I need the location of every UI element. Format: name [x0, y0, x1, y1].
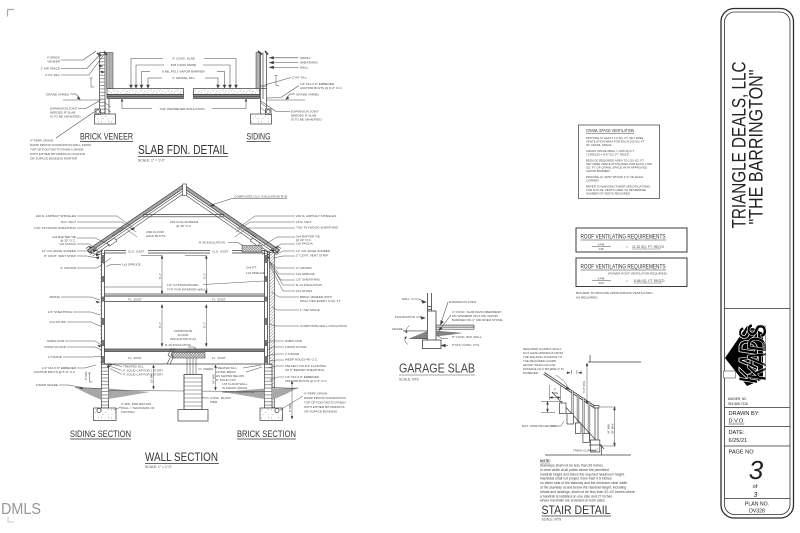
svg-text:BUILDER TO PROVIDE APPROPRIATE: BUILDER TO PROVIDE APPROPRIATE VENTILATI… [576, 291, 653, 295]
svg-text:8" MIN: 8" MIN [288, 404, 292, 412]
svg-text:PLAN NO.: PLAN NO. [745, 502, 769, 508]
svg-text:2"X4" SILL: 2"X4" SILL [45, 73, 60, 77]
svg-text:3: 3 [749, 455, 764, 485]
svg-text:ANGIER, NC: ANGIER, NC [728, 397, 747, 401]
svg-text:IS TO BE UNHEATED: IS TO BE UNHEATED [50, 115, 81, 119]
svg-text:1/2" SHEATHING: 1/2" SHEATHING [296, 278, 321, 282]
svg-text:6/25/21: 6/25/21 [729, 438, 748, 444]
svg-text:R-13 INSULATION: R-13 INSULATION [296, 283, 322, 287]
svg-text:D.V.O.: D.V.O. [729, 419, 746, 425]
svg-text:34" MIN.: 34" MIN. [607, 423, 611, 434]
svg-text:9": 9" [554, 388, 556, 392]
svg-text:6'-8" MIN.: 6'-8" MIN. [582, 380, 586, 393]
svg-text:UP 6" BEHIND SHEATHING: UP 6" BEHIND SHEATHING [285, 368, 325, 372]
svg-text:of the stairway at and below t: of the stairway at and below the handrai… [540, 486, 626, 490]
svg-text:WEEP HOLES 48" O.C.: WEEP HOLES 48" O.C. [285, 358, 318, 362]
svg-text:240 lb. ASPHALT SHINGLES: 240 lb. ASPHALT SHINGLES [36, 214, 76, 218]
svg-text:15 lb. FELT: 15 lb. FELT [60, 220, 76, 224]
svg-text:8" CONC. BLK WALL: 8" CONC. BLK WALL [452, 335, 482, 339]
svg-text:SIDING: SIDING [300, 56, 311, 60]
svg-text:2" CROWN: 2" CROWN [296, 266, 312, 270]
svg-text:COMPOSITE CLG. INSULATION R-30: COMPOSITE CLG. INSULATION R-30 [234, 195, 288, 199]
svg-text:=: = [626, 245, 628, 249]
svg-text:2" CONT. VENT STRIP: 2" CONT. VENT STRIP [296, 254, 328, 258]
svg-text:24" MIN: 24" MIN [212, 374, 216, 384]
svg-text:1x3 SPRUCE: 1x3 SPRUCE [122, 263, 141, 267]
svg-text:15 lb. FELT: 15 lb. FELT [296, 220, 312, 224]
svg-text:ROOF VENTILATING REQUIREMENTS: ROOF VENTILATING REQUIREMENTS [581, 264, 666, 271]
svg-text:FINISH FLOOR: FINISH FLOOR [44, 345, 66, 349]
svg-text:SCALE: 1" = 1'-0": SCALE: 1" = 1'-0" [145, 465, 173, 469]
svg-text:8'-1": 8'-1" [158, 273, 162, 279]
svg-text:CLG. JOIST: CLG. JOIST [128, 250, 145, 254]
svg-text:BARRIER ON 4" CRUSHED STONE: BARRIER ON 4" CRUSHED STONE [452, 318, 503, 322]
svg-text:7/16" PLYWOOD SHEATHING: 7/16" PLYWOOD SHEATHING [296, 226, 339, 230]
svg-text:2 X BAND: 2 X BAND [285, 352, 300, 356]
svg-text:UNDER: UNDER [203, 367, 213, 371]
svg-text:SUBFLOOR: SUBFLOOR [47, 339, 65, 343]
svg-text:2" CROWN: 2" CROWN [60, 266, 76, 270]
svg-text:=: = [626, 279, 628, 283]
svg-text:FOOTING: FOOTING [121, 410, 135, 414]
svg-text:DAMP PROOF FOUNDATION: DAMP PROOF FOUNDATION [304, 396, 346, 400]
svg-text:4" PERF. DRAIN: 4" PERF. DRAIN [30, 139, 53, 143]
svg-text:2x4 P.T.: 2x4 P.T. [246, 266, 257, 270]
svg-text:CLG. JOIST: CLG. JOIST [212, 250, 229, 254]
svg-text:7/16" PLYWOOD SHEATHING: 7/16" PLYWOOD SHEATHING [34, 226, 77, 230]
svg-text:8" MIN: 8" MIN [84, 372, 88, 380]
svg-text:12" GS. EDGE SCREEN: 12" GS. EDGE SCREEN [296, 249, 330, 253]
svg-text:8"X16" CONC. FTG.: 8"X16" CONC. FTG. [452, 343, 480, 347]
svg-text:NUMBER OF VENTS REQUIRED.: NUMBER OF VENTS REQUIRED. [586, 192, 631, 196]
svg-text:WALL SECTION: WALL SECTION [145, 450, 218, 464]
svg-text:BRICK SECTION: BRICK SECTION [237, 429, 296, 439]
svg-text:GRADE: GRADE [392, 327, 403, 331]
svg-text:6X6 (10/10 WWM): 6X6 (10/10 WWM) [171, 63, 196, 67]
svg-text:12" GS. EDGE SCREEN: 12" GS. EDGE SCREEN [42, 249, 76, 253]
svg-text:in clear width at all points a: in clear width at all points above the p… [540, 468, 609, 472]
svg-text:KADS: KADS [742, 324, 772, 381]
svg-text:R-19 INSULATION: R-19 INSULATION [165, 343, 191, 347]
svg-text:of: of [753, 484, 758, 490]
svg-text:VAPOR BARRIER.: VAPOR BARRIER. [586, 169, 611, 173]
svg-text:WALL TIES EVERY 3 SQ. FT.: WALL TIES EVERY 3 SQ. FT. [300, 299, 341, 303]
svg-text:240 lb. ASPHALT SHINGLES: 240 lb. ASPHALT SHINGLES [296, 214, 336, 218]
svg-text:SIDING: SIDING [247, 132, 271, 142]
svg-text:BRICK VENEER: BRICK VENEER [80, 132, 133, 142]
svg-text:8'-1": 8'-1" [158, 322, 162, 328]
svg-text:treads and landings, shall not: treads and landings, shall not be less t… [540, 490, 635, 494]
svg-text:STAIR DETAIL: STAIR DETAIL [542, 505, 612, 517]
svg-text:1" AIR SPACE: 1" AIR SPACE [300, 308, 320, 312]
svg-text:TOP OF FOOTINGTO FINISH GRADE: TOP OF FOOTINGTO FINISH GRADE [30, 148, 83, 152]
svg-text:DV328: DV328 [749, 509, 765, 515]
svg-text:ROOF VENTILATING REQUIREMENTS: ROOF VENTILATING REQUIREMENTS [581, 234, 666, 241]
svg-text:FL. JOIST: FL. JOIST [212, 298, 226, 302]
svg-text:(MIN. 22" CLEARANCE): (MIN. 22" CLEARANCE) [222, 390, 255, 394]
svg-text:VENEER: VENEER [47, 60, 60, 64]
svg-text:OR SUFACE BONDING: OR SUFACE BONDING [304, 410, 338, 414]
svg-text:138: 138 [598, 247, 603, 251]
svg-text:4" PERF. DRAIN: 4" PERF. DRAIN [304, 392, 327, 396]
svg-text:5.86 SQ. FT. REQ'D: 5.86 SQ. FT. REQ'D [634, 279, 665, 283]
svg-text:TOP OF FOOTINGTO FINISH: TOP OF FOOTINGTO FINISH [304, 401, 346, 405]
svg-text:1x6 FASCIA: 1x6 FASCIA [59, 242, 77, 246]
svg-text:WALL: WALL [402, 297, 411, 301]
svg-text:8'-1": 8'-1" [202, 273, 206, 279]
svg-text:R-38 INSULATION: R-38 INSULATION [199, 241, 225, 245]
svg-text:SIDING: SIDING [49, 295, 60, 299]
svg-text:@ 48" O.C.: @ 48" O.C. [176, 224, 192, 228]
svg-text:CORNER.: CORNER. [586, 179, 600, 183]
svg-text:8'-1": 8'-1" [202, 322, 206, 328]
svg-text:ANCHOR BOLTS @ 6'-0" O.C.: ANCHOR BOLTS @ 6'-0" O.C. [34, 370, 77, 374]
svg-text:71345/150 = 8.97 SQ. FT. REQ'D: 71345/150 = 8.97 SQ. FT. REQ'D. [586, 153, 630, 157]
svg-text:WITH EITHER BITUMINOUS: WITH EITHER BITUMINOUS [304, 405, 344, 409]
svg-text:11.32 SQ. FT. REQ'D: 11.32 SQ. FT. REQ'D [632, 245, 665, 249]
svg-text:IS TO BE UNHEATED: IS TO BE UNHEATED [291, 118, 322, 122]
svg-text:SHEATHING: SHEATHING [300, 61, 318, 65]
svg-text:WITH EITHER BITUMINOUS COATING: WITH EITHER BITUMINOUS COATING [30, 152, 86, 156]
svg-text:SCALE: NTS: SCALE: NTS [399, 378, 420, 382]
svg-text:7/24" PERIMETER INSULATION: 7/24" PERIMETER INSULATION [159, 107, 204, 111]
svg-text:where handrails are provided o: where handrails are provided on both sid… [540, 499, 605, 503]
svg-text:4" CONC. SLAB: 4" CONC. SLAB [172, 57, 194, 61]
svg-text:2"X4" SILL: 2"X4" SILL [292, 76, 307, 80]
svg-text:ANCHOR BOLTS @ 6'-0" O.C.: ANCHOR BOLTS @ 6'-0" O.C. [300, 86, 343, 90]
svg-text:FL. JOIST: FL. JOIST [212, 356, 226, 360]
svg-text:PIER: PIER [210, 400, 218, 404]
svg-text:handrail height and below the: handrail height and below the required h… [540, 472, 625, 476]
svg-text:Handrails shall not project mo: Handrails shall not project more than 4.… [540, 477, 612, 481]
svg-text:1x6 SPRUCE: 1x6 SPRUCE [296, 272, 315, 276]
svg-text:GRADE VARIES: GRADE VARIES [46, 93, 69, 97]
svg-text:EXPANSION JOINT: EXPANSION JOINT [449, 300, 477, 304]
svg-text:2x4 STUDS: 2x4 STUDS [50, 320, 66, 324]
svg-text:OF CRAWL SPACE.: OF CRAWL SPACE. [586, 143, 612, 147]
svg-text:AS REQUIRED.: AS REQUIRED. [576, 296, 598, 300]
svg-text:1448: 1448 [598, 277, 605, 281]
svg-text:1/2" GYPSUM BOARD: 1/2" GYPSUM BOARD [167, 283, 199, 287]
svg-text:DMLS: DMLS [1, 501, 41, 518]
svg-text:SIDING SECTION: SIDING SECTION [70, 429, 131, 439]
svg-text:300: 300 [598, 281, 603, 285]
svg-text:8" CONT. VENT STRIP: 8" CONT. VENT STRIP [44, 254, 76, 258]
svg-text:TYP. FOR INTERIOR WALLS: TYP. FOR INTERIOR WALLS [167, 288, 208, 292]
svg-text:(POWER ROOF VENTILATOR REQUIRE: (POWER ROOF VENTILATOR REQUIRED) [608, 272, 667, 276]
svg-text:RISE: RISE [552, 391, 558, 395]
svg-text:FL. JOIST: FL. JOIST [128, 356, 142, 360]
svg-text:GARAGE SLAB: GARAGE SLAB [399, 362, 475, 376]
svg-text:3: 3 [754, 492, 758, 499]
svg-text:WALL: WALL [300, 65, 309, 69]
svg-text:on either side of the stairway: on either side of the stairway and the m… [540, 481, 627, 485]
svg-text:SLAB FDN. DETAIL: SLAB FDN. DETAIL [138, 143, 228, 157]
svg-text:4" GRAVEL FILL: 4" GRAVEL FILL [172, 76, 195, 80]
svg-text:DATE:: DATE: [729, 430, 746, 436]
svg-text:SCALE: 1" = 1'-0": SCALE: 1" = 1'-0" [138, 159, 166, 163]
svg-text:FINISH FLOOR: FINISH FLOOR [285, 345, 307, 349]
svg-text:a handrail is installed on one: a handrail is installed on one side and … [540, 494, 612, 498]
svg-text:CRAWL SPACE VENTILATION: CRAWL SPACE VENTILATION [586, 128, 634, 133]
svg-text:DAMP PROOF FOUNDATION WALL FRO: DAMP PROOF FOUNDATION WALL FROM [30, 143, 91, 147]
svg-text:AVAIL BL'KTS: AVAIL BL'KTS [146, 234, 165, 238]
svg-text:2x4 STUDS: 2x4 STUDS [296, 289, 312, 293]
svg-text:COMPOSITE WALL INSULATION: COMPOSITE WALL INSULATION [300, 324, 347, 328]
svg-text:OR SUFACE BONDING MORTAR: OR SUFACE BONDING MORTAR [30, 157, 78, 161]
svg-text:INSULATION R-22: INSULATION R-22 [170, 337, 196, 341]
svg-text:DRAWN BY:: DRAWN BY: [729, 411, 761, 417]
svg-text:GRADE VARIES: GRADE VARIES [296, 93, 319, 97]
svg-text:919-569-7118: 919-569-7118 [728, 402, 748, 406]
svg-text:SCALE: NTS: SCALE: NTS [542, 518, 563, 522]
svg-text:DIAMETER.: DIAMETER. [523, 371, 539, 375]
svg-text:1/2" SHEATHING: 1/2" SHEATHING [48, 310, 73, 314]
svg-text:FL. JOIST: FL. JOIST [128, 298, 142, 302]
svg-text:1x6 SPRUCE: 1x6 SPRUCE [246, 271, 265, 275]
svg-text:FINISH GRADE: FINISH GRADE [36, 383, 58, 387]
svg-text:1448: 1448 [598, 243, 605, 247]
svg-text:CUSTOM HOME DESIGNS, INC.: CUSTOM HOME DESIGNS, INC. [763, 335, 766, 371]
svg-text:NOTE:: NOTE: [540, 459, 551, 463]
svg-text:4" SOLID CAP FOR 1 STORY: 4" SOLID CAP FOR 1 STORY [123, 373, 163, 377]
svg-text:2 X BAND: 2 X BAND [48, 355, 63, 359]
svg-text:SUBFLOOR: SUBFLOOR [285, 339, 303, 343]
svg-text:38" MAX.: 38" MAX. [611, 422, 615, 434]
svg-text:1x6 FASCIA: 1x6 FASCIA [296, 242, 314, 246]
svg-text:FOUNDATION: FOUNDATION [395, 315, 415, 319]
svg-text:"THE BARRINGTON": "THE BARRINGTON" [747, 70, 768, 225]
svg-text:1" AIR SPACE: 1" AIR SPACE [40, 67, 60, 71]
svg-text:6 MIL POLY VAPOR BARRIER: 6 MIL POLY VAPOR BARRIER [162, 70, 205, 74]
svg-text:Stairways shall not be less th: Stairways shall not be less than 36 inch… [540, 464, 603, 468]
